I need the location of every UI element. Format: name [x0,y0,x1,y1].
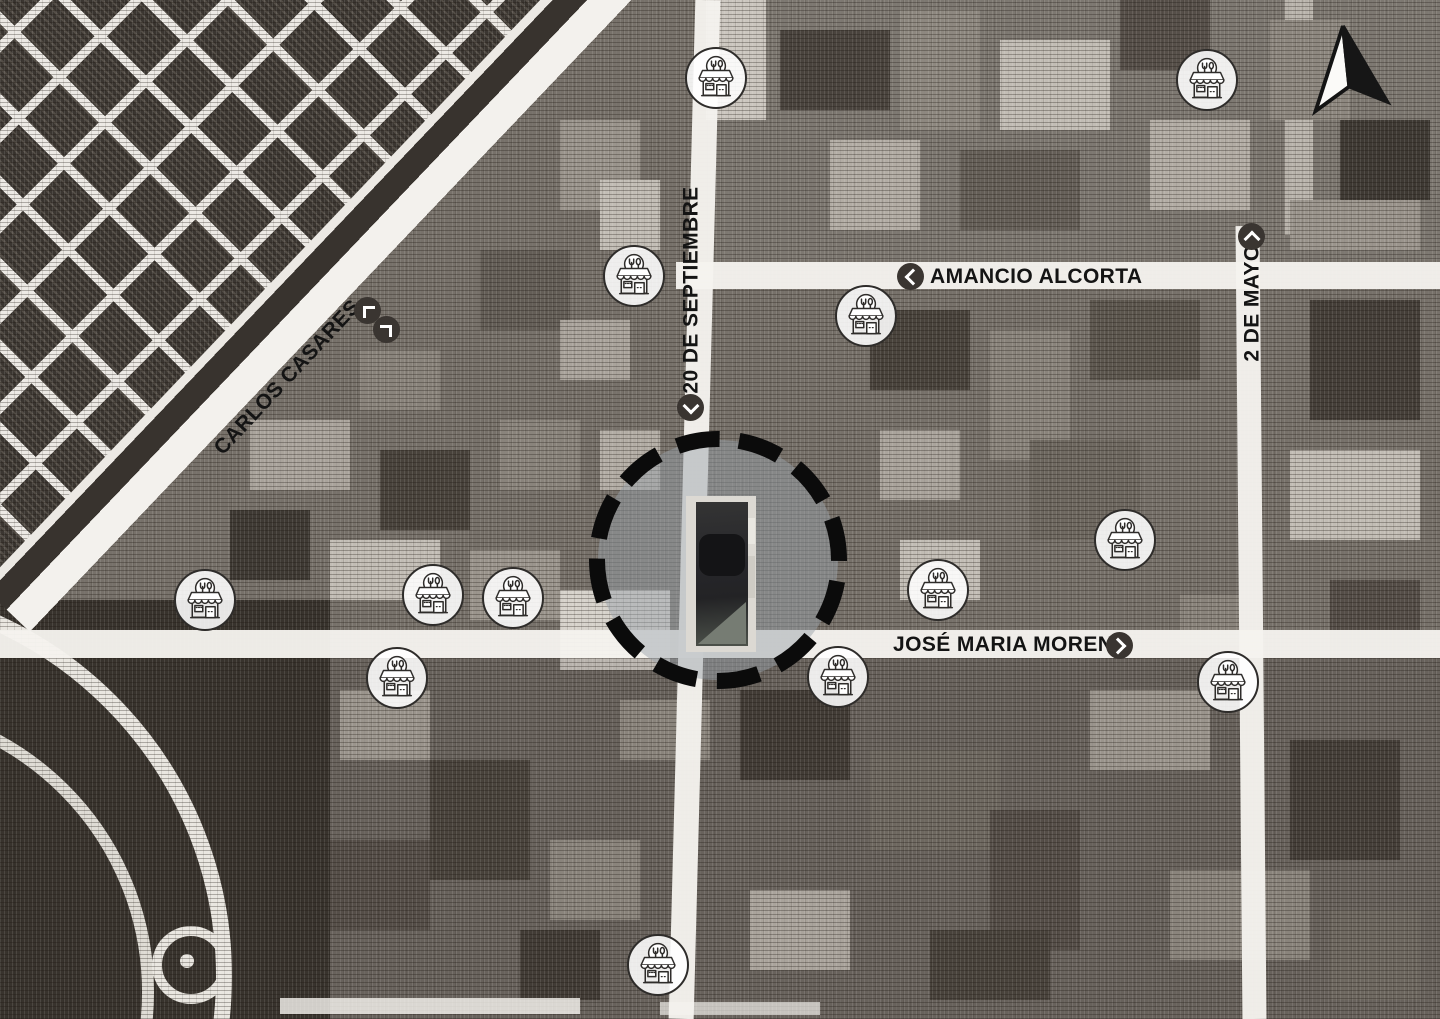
restaurant-storefront-icon [610,252,658,300]
restaurant-marker[interactable] [603,245,665,307]
city-block [1090,690,1210,770]
north-arrow-icon [1295,17,1399,121]
restaurant-marker[interactable] [1094,509,1156,571]
city-block [250,420,350,490]
restaurant-marker[interactable] [1176,49,1238,111]
city-block [1150,120,1250,210]
city-block [430,760,530,880]
city-block [830,140,920,230]
featured-building-roof-cap [699,534,745,576]
city-block [750,890,850,970]
chevron-up-icon [1238,223,1265,250]
city-block [1330,910,1420,1000]
restaurant-storefront-icon [181,576,229,624]
city-block [1170,870,1310,960]
city-block [1290,740,1400,860]
map-canvas: CARLOS CASARES 20 DE SEPTIEMBRE AMANCIO … [0,0,1440,1019]
roundabout-center [180,954,194,968]
restaurant-marker[interactable] [402,564,464,626]
restaurant-marker[interactable] [907,559,969,621]
city-block [780,30,890,110]
city-block [870,750,1000,850]
city-block [600,180,660,250]
city-block [990,810,1080,950]
city-block [1340,120,1430,200]
restaurant-storefront-icon [634,941,682,989]
chevron-left-icon [897,263,924,290]
city-block [230,510,310,580]
restaurant-storefront-icon [1183,56,1231,104]
chevron-down-icon [677,394,704,421]
restaurant-storefront-icon [842,292,890,340]
restaurant-storefront-icon [814,653,862,701]
city-block [560,320,630,380]
chevron-northeast-icon [373,316,400,343]
restaurant-marker[interactable] [627,934,689,996]
restaurant-storefront-icon [692,54,740,102]
restaurant-storefront-icon [373,654,421,702]
city-block [380,450,470,530]
street-label-2-de-mayo: 2 DE MAYO [1239,244,1266,361]
restaurant-marker[interactable] [366,647,428,709]
road-bottom-segment [280,998,580,1014]
city-block [550,840,640,920]
restaurant-marker[interactable] [807,646,869,708]
restaurant-storefront-icon [1204,658,1252,706]
restaurant-storefront-icon [409,571,457,619]
road-bottom-segment [660,1002,820,1015]
restaurant-marker[interactable] [482,567,544,629]
city-block [930,930,1050,1000]
city-block [1090,300,1200,380]
street-label-amancio-alcorta: AMANCIO ALCORTA [930,263,1142,290]
city-block [1290,200,1420,250]
city-block [1290,450,1420,540]
restaurant-marker[interactable] [685,47,747,109]
restaurant-marker[interactable] [1197,651,1259,713]
street-label-jose-maria-moreno: JOSÉ MARIA MORENO [893,631,1130,658]
restaurant-storefront-icon [914,566,962,614]
city-block [1310,300,1420,420]
restaurant-storefront-icon [489,574,537,622]
restaurant-marker[interactable] [174,569,236,631]
restaurant-marker[interactable] [835,285,897,347]
featured-building-detail [748,518,755,544]
stadium-district [0,600,330,1019]
restaurant-storefront-icon [1101,516,1149,564]
featured-building-detail [748,556,755,598]
city-block [900,10,980,130]
city-block [880,430,960,500]
city-block [520,930,600,1000]
city-block [480,250,570,330]
city-block [360,350,440,410]
city-block [500,420,580,490]
street-label-20-de-septiembre: 20 DE SEPTIEMBRE [678,186,705,393]
chevron-right-icon [1106,632,1133,659]
city-block [960,150,1080,230]
city-block [1000,40,1110,130]
